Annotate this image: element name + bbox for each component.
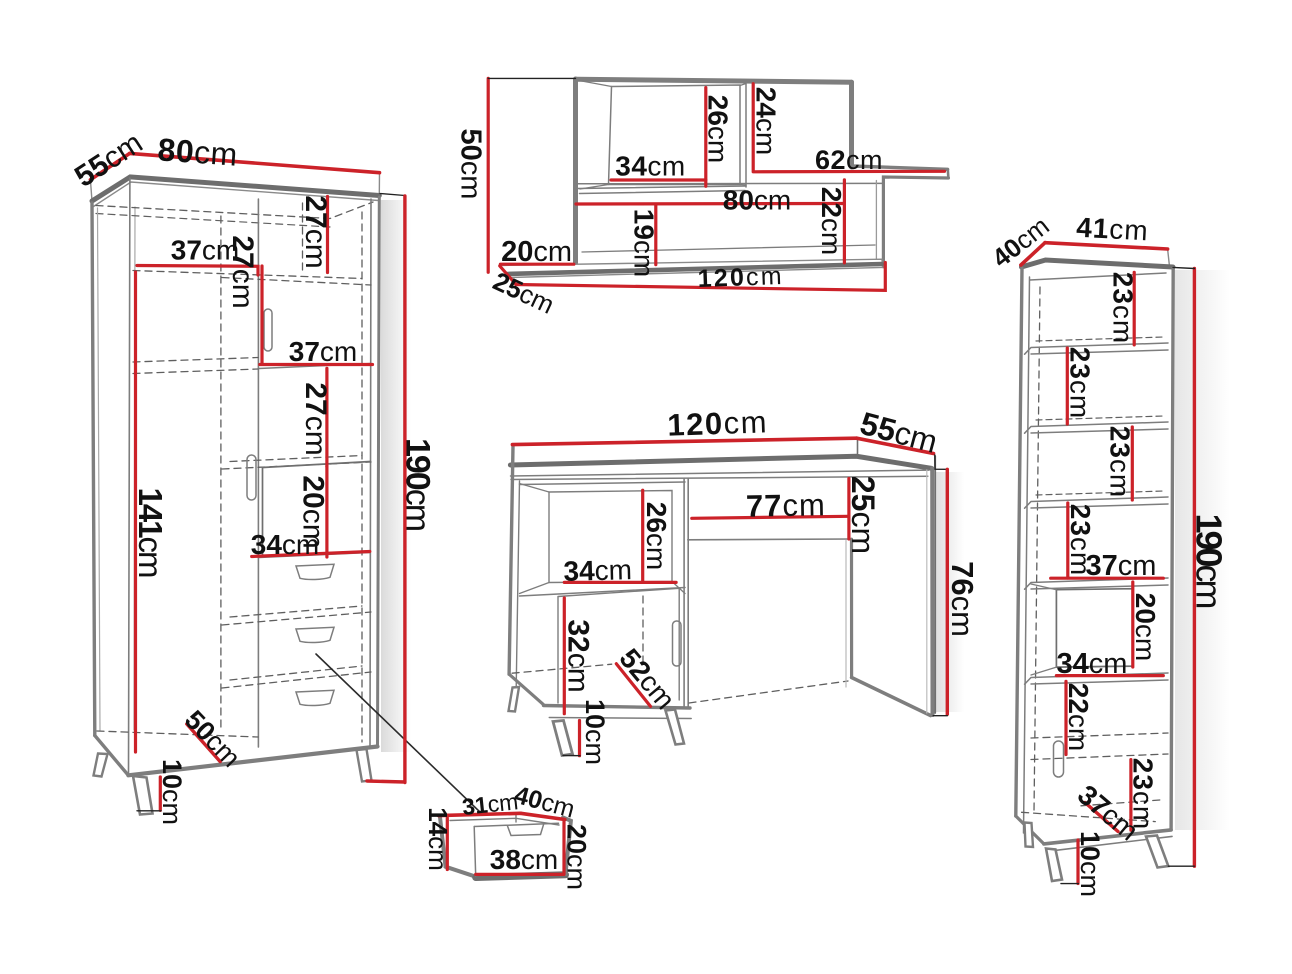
svg-text:190cm: 190cm (1189, 513, 1230, 607)
svg-text:50cm: 50cm (455, 129, 487, 200)
svg-text:34cm: 34cm (251, 529, 319, 560)
svg-text:14cm: 14cm (423, 807, 453, 871)
svg-text:26cm: 26cm (641, 502, 672, 570)
svg-text:23cm: 23cm (1108, 272, 1139, 344)
svg-text:19cm: 19cm (629, 209, 660, 277)
svg-text:77cm: 77cm (746, 487, 826, 523)
svg-text:190cm: 190cm (399, 438, 437, 531)
svg-text:120cm: 120cm (667, 404, 769, 442)
svg-text:34cm: 34cm (563, 554, 632, 587)
svg-text:37cm: 37cm (1086, 550, 1157, 582)
svg-text:23cm: 23cm (1105, 426, 1136, 498)
svg-text:22cm: 22cm (816, 187, 847, 255)
svg-text:62cm: 62cm (815, 145, 883, 175)
svg-text:141cm: 141cm (132, 487, 169, 577)
svg-text:25cm: 25cm (845, 476, 881, 554)
svg-text:20cm: 20cm (1130, 593, 1161, 661)
svg-text:20cm: 20cm (562, 824, 592, 890)
svg-text:22cm: 22cm (1063, 683, 1094, 751)
svg-text:27cm: 27cm (226, 235, 259, 308)
svg-text:38cm: 38cm (490, 844, 558, 875)
svg-text:10cm: 10cm (157, 759, 187, 825)
svg-text:80cm: 80cm (156, 131, 239, 173)
svg-text:120cm: 120cm (697, 262, 784, 293)
svg-text:24cm: 24cm (751, 87, 782, 155)
svg-text:32cm: 32cm (562, 619, 595, 692)
svg-text:80cm: 80cm (723, 185, 791, 216)
svg-text:34cm: 34cm (1057, 648, 1128, 680)
svg-text:10cm: 10cm (1075, 831, 1105, 897)
svg-text:20cm: 20cm (501, 236, 572, 268)
svg-text:27cm: 27cm (299, 382, 332, 455)
svg-text:27cm: 27cm (299, 195, 332, 268)
svg-text:23cm: 23cm (1065, 347, 1096, 419)
svg-text:76cm: 76cm (945, 561, 980, 637)
svg-text:10cm: 10cm (580, 699, 610, 765)
svg-text:26cm: 26cm (703, 95, 734, 163)
svg-text:34cm: 34cm (615, 151, 685, 182)
svg-text:41cm: 41cm (1075, 212, 1149, 247)
svg-text:37cm: 37cm (289, 336, 357, 367)
